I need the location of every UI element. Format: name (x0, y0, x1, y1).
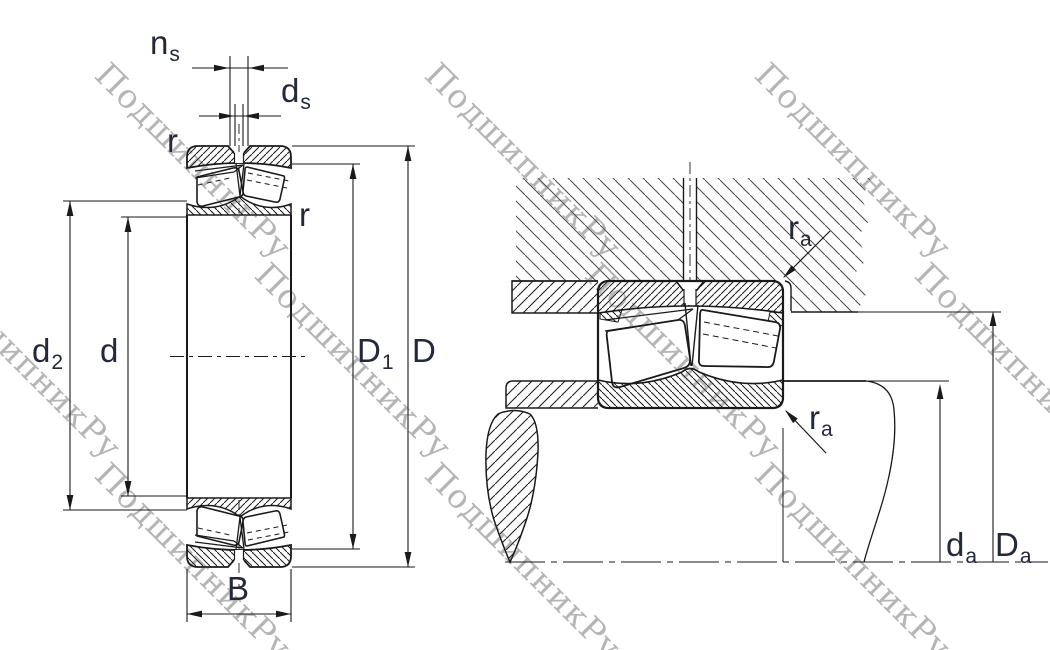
label-D: D (412, 334, 437, 367)
shaft-break-section (486, 411, 538, 563)
lubrication-hole (235, 152, 244, 163)
right-view-mounting-section (486, 162, 1048, 562)
d2-extension-lines (63, 201, 187, 510)
label-Da: Da (995, 528, 1032, 561)
bearing-top-half (187, 146, 291, 215)
technical-drawing-page: ns ds r r d2 d D1 D B ra ra da Da Подшип… (0, 0, 1050, 650)
label-d: d (100, 334, 119, 367)
label-ds: ds (281, 74, 311, 107)
shaft-break-curve (864, 381, 895, 562)
label-B: B (227, 572, 250, 605)
label-d2: d2 (32, 334, 63, 367)
label-D1: D1 (357, 334, 394, 367)
lubrication-hole-right (684, 288, 696, 305)
label-da: da (946, 528, 977, 561)
housing-shoulder-fillet (785, 281, 791, 311)
shaft-shoulder-ring (506, 381, 598, 408)
label-ra-shaft: ra (809, 401, 833, 434)
label-r-side: r (299, 198, 311, 231)
roller-right (243, 167, 285, 202)
label-r-top: r (167, 124, 179, 157)
label-ra-housing: ra (788, 211, 812, 244)
label-ns: ns (150, 26, 180, 59)
housing-abutment-ring (512, 281, 598, 313)
bearing-drawing (0, 0, 1050, 650)
